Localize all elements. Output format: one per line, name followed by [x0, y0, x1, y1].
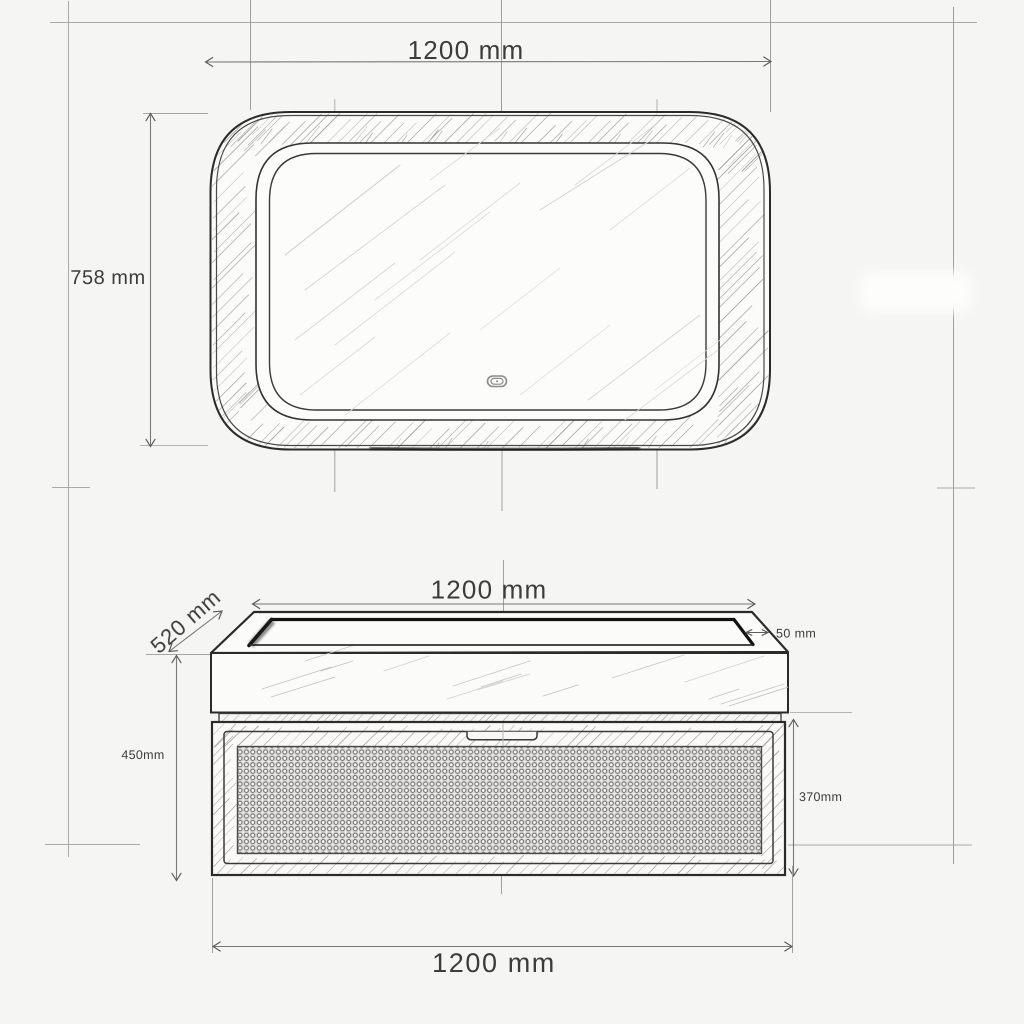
- svg-text:1200 mm: 1200 mm: [431, 575, 548, 605]
- svg-text:1200 mm: 1200 mm: [432, 948, 556, 978]
- svg-text:758 mm: 758 mm: [70, 267, 145, 289]
- svg-text:1200 mm: 1200 mm: [408, 35, 525, 65]
- svg-text:50 mm: 50 mm: [776, 627, 816, 641]
- svg-text:370mm: 370mm: [799, 790, 842, 804]
- svg-text:450mm: 450mm: [121, 748, 164, 762]
